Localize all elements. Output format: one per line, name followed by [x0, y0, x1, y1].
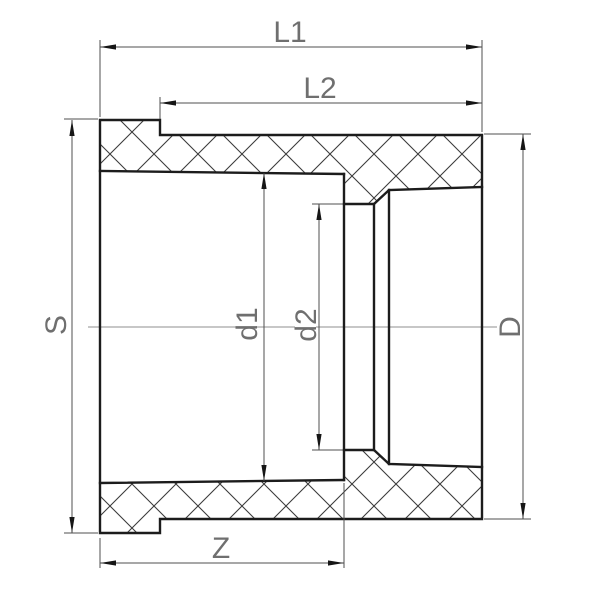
d1-label: d1 — [231, 307, 264, 340]
d-label: D — [494, 316, 527, 338]
l2-arrow-right — [466, 100, 482, 105]
l1-arrow-right — [466, 44, 482, 49]
d2-arrow-top — [316, 204, 321, 220]
l2-label: L2 — [303, 72, 336, 105]
d1-arrow-top — [261, 173, 266, 189]
l2-arrow-left — [160, 100, 176, 105]
d2-label: d2 — [290, 308, 323, 341]
d1-arrow-bottom — [261, 465, 266, 481]
drawing-canvas: L1 L2 S d1 d2 D — [0, 0, 600, 600]
s-arrow-top — [69, 120, 74, 136]
dimension-l1: L1 — [100, 16, 482, 132]
dimension-s: S — [40, 119, 98, 533]
pipe-fitting-section-drawing: L1 L2 S d1 d2 D — [0, 0, 600, 600]
l1-label: L1 — [273, 16, 306, 49]
d-arrow-top — [520, 134, 525, 150]
s-arrow-bottom — [69, 517, 74, 533]
z-arrow-right — [328, 560, 344, 565]
d2-arrow-bottom — [316, 434, 321, 450]
z-arrow-left — [100, 560, 116, 565]
dimension-d1: d1 — [231, 173, 267, 481]
hatch-top-wall — [100, 120, 482, 204]
l1-arrow-left — [100, 44, 116, 49]
hatch-bottom-wall — [100, 450, 482, 533]
l1-extension-lines — [100, 40, 482, 132]
dimension-l2: L2 — [160, 72, 482, 119]
d-arrow-bottom — [520, 503, 525, 519]
z-label: Z — [212, 532, 230, 565]
s-label: S — [40, 315, 73, 335]
